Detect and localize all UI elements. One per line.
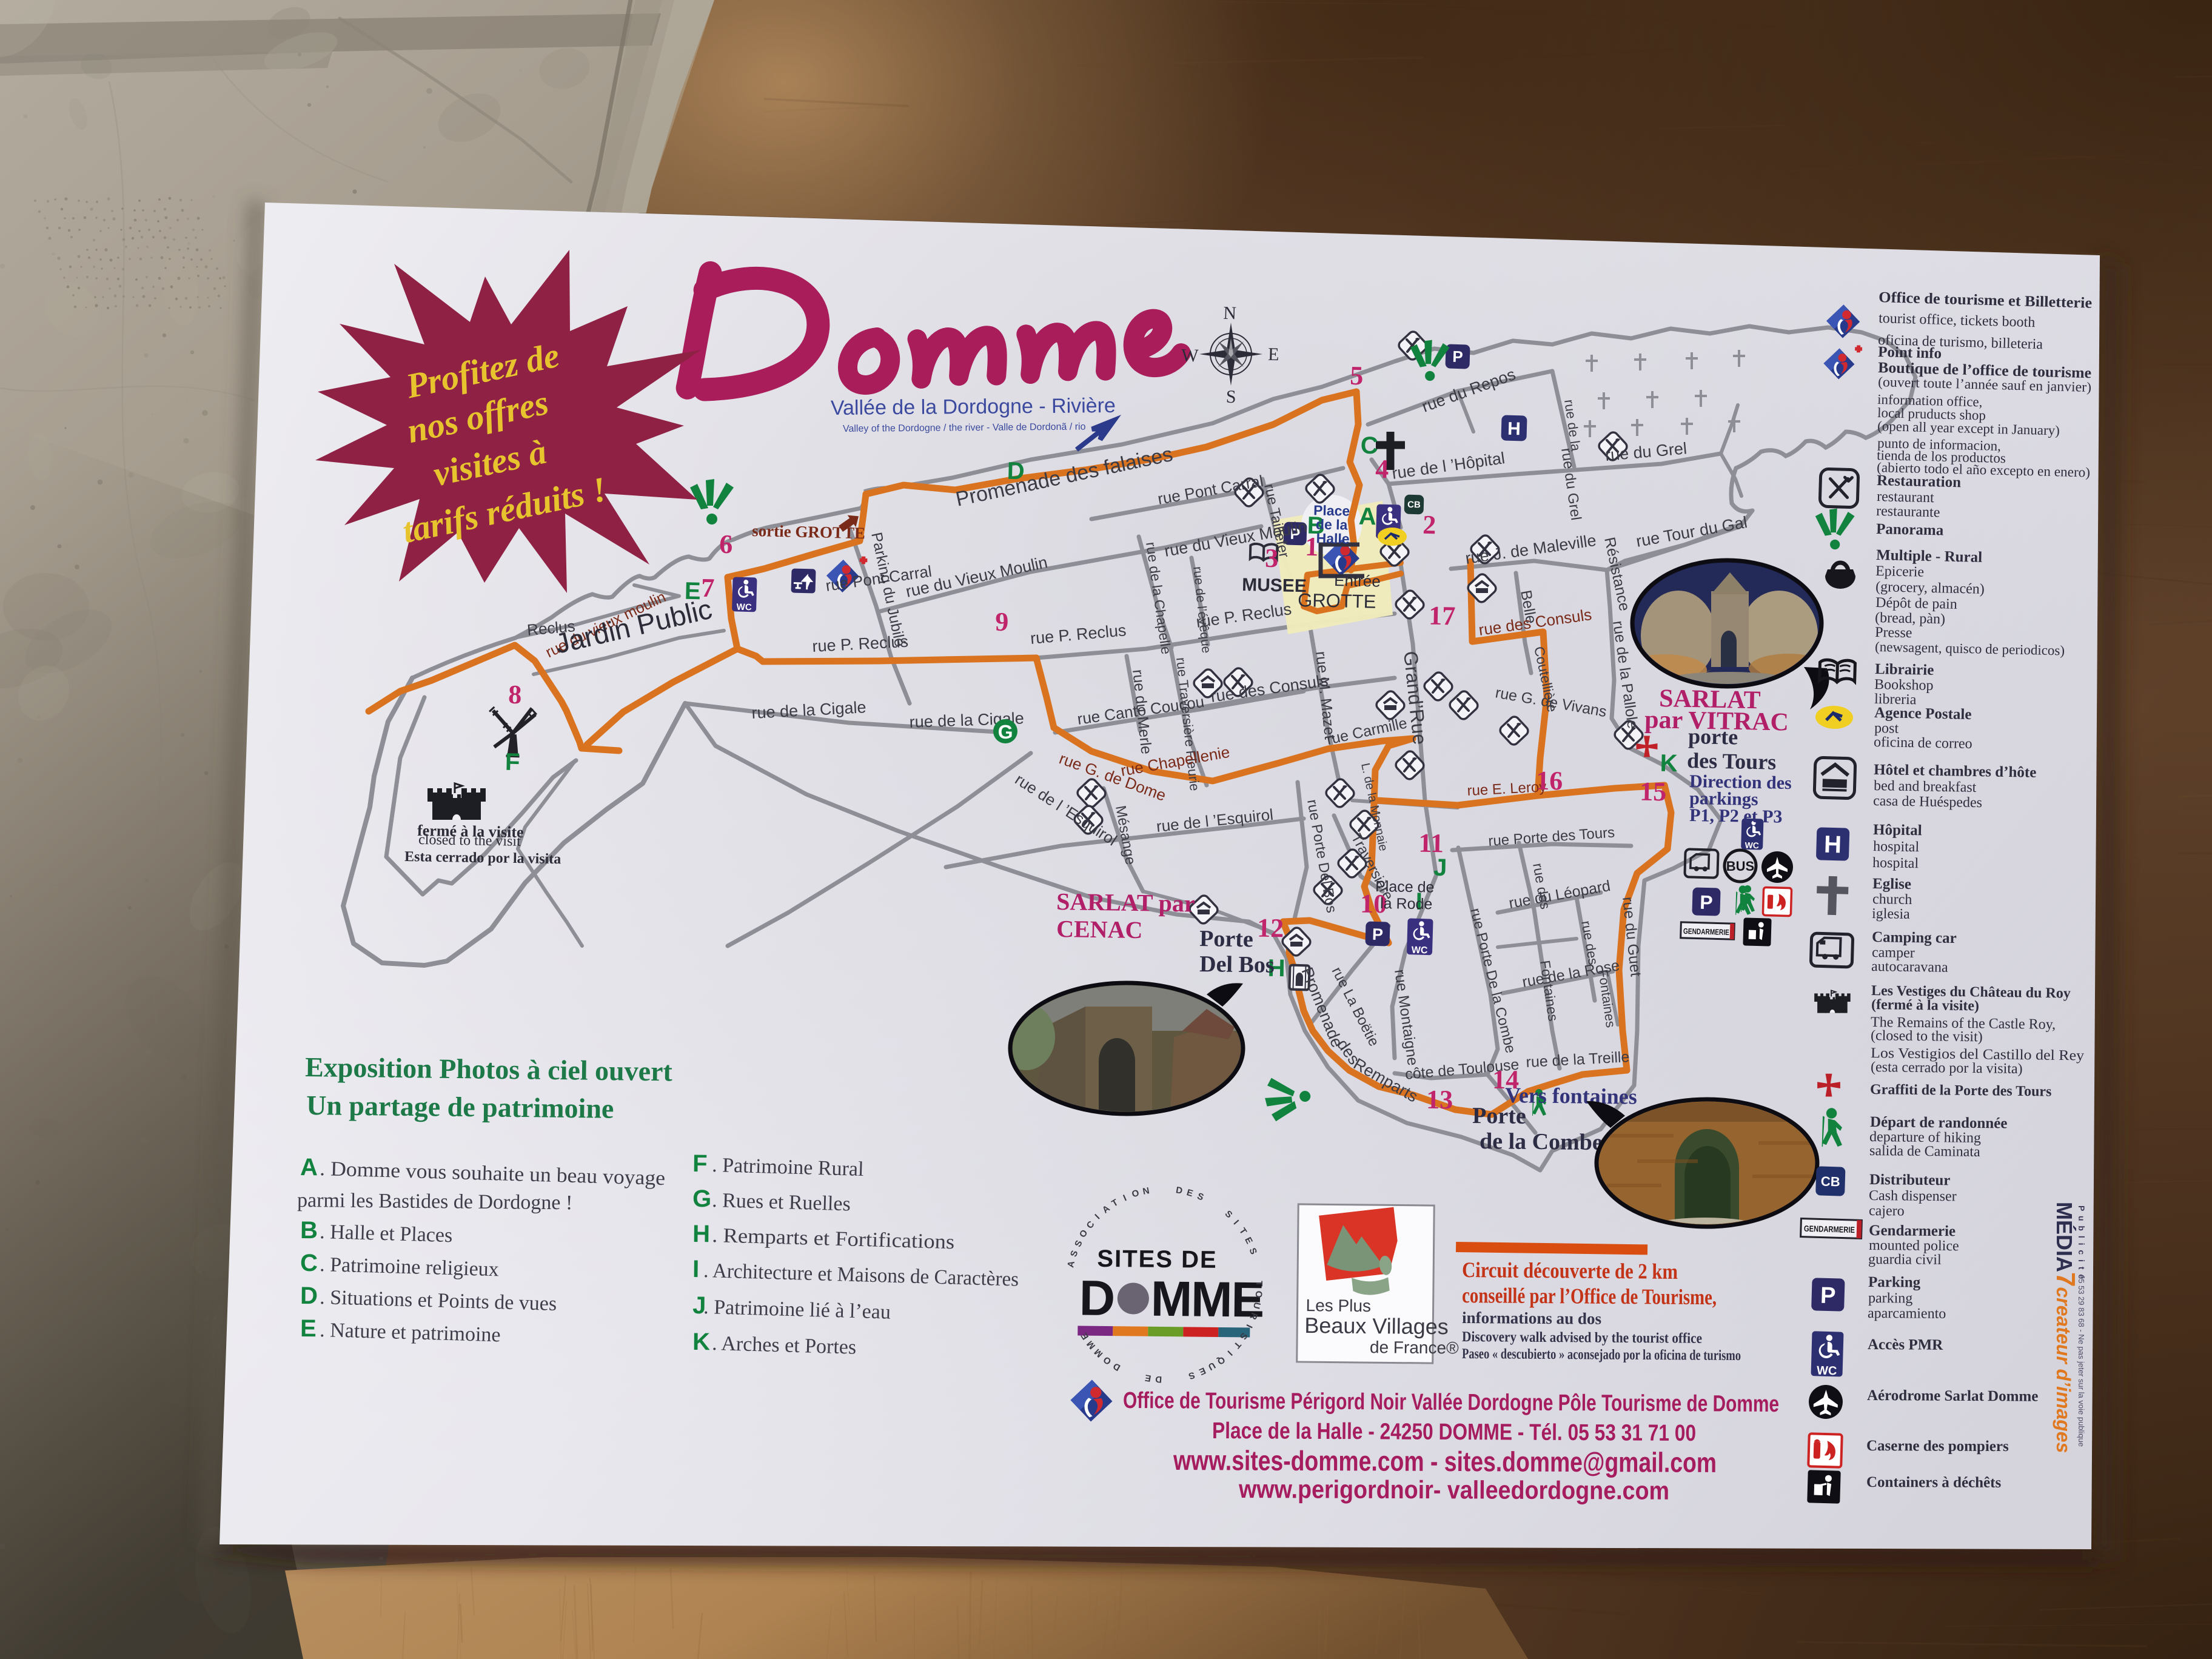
svg-text:D: D: [1079, 1271, 1115, 1327]
svg-text:9: 9: [995, 607, 1009, 637]
svg-text:N: N: [1223, 303, 1237, 324]
svg-text:H: H: [1824, 831, 1842, 859]
svg-text:Vallée de la Dordogne - Rivièr: Vallée de la Dordogne - Rivière: [831, 394, 1116, 420]
svg-text:. Patrimoine Rural: . Patrimoine Rural: [712, 1154, 864, 1181]
svg-text:WC: WC: [1412, 945, 1429, 956]
svg-text:la Rode: la Rode: [1380, 895, 1433, 913]
svg-text:autocaravana: autocaravana: [1871, 959, 1948, 976]
svg-text:CB: CB: [1407, 500, 1421, 511]
svg-text:Librairie: Librairie: [1875, 661, 1934, 679]
svg-text:E: E: [300, 1315, 317, 1342]
svg-text:oficina de correo: oficina de correo: [1874, 734, 1972, 752]
svg-text:Containers à déchêts: Containers à déchêts: [1866, 1474, 2002, 1491]
svg-text:2: 2: [1423, 510, 1436, 540]
svg-text:Distributeur: Distributeur: [1869, 1171, 1951, 1188]
svg-text:O: O: [1253, 1290, 1264, 1299]
svg-text:iglesia: iglesia: [1872, 906, 1910, 922]
svg-text:informations au dos: informations au dos: [1462, 1309, 1601, 1328]
svg-text:6: 6: [719, 529, 733, 559]
svg-text:closed to the visit: closed to the visit: [418, 832, 521, 850]
svg-text:P1, P2 et P3: P1, P2 et P3: [1689, 805, 1783, 827]
svg-text:parking: parking: [1868, 1290, 1913, 1307]
svg-text:Multiple - Rural: Multiple - Rural: [1876, 547, 1983, 566]
svg-text:Del Bos: Del Bos: [1199, 951, 1275, 978]
svg-text:13: 13: [1426, 1085, 1453, 1115]
svg-text:SITES DE: SITES DE: [1097, 1245, 1218, 1273]
svg-text:Hôpital: Hôpital: [1873, 822, 1922, 839]
svg-text:Halle: Halle: [1316, 530, 1350, 546]
svg-text:P: P: [1700, 891, 1713, 914]
svg-text:P u b l i c i t é: P u b l i c i t é: [2077, 1205, 2086, 1280]
svg-text:H: H: [1507, 419, 1521, 440]
svg-text:cajero: cajero: [1869, 1203, 1905, 1219]
svg-text:(esta cerrado por la visita): (esta cerrado por la visita): [1871, 1059, 2023, 1077]
svg-text:Place de la Halle - 24250 DOMM: Place de la Halle - 24250 DOMME - Tél. 0…: [1212, 1418, 1696, 1446]
svg-text:SARLAT par: SARLAT par: [1056, 888, 1195, 917]
svg-text:guardia civil: guardia civil: [1868, 1252, 1942, 1268]
svg-text:Camping car: Camping car: [1872, 929, 1957, 947]
svg-text:GENDARMERIE: GENDARMERIE: [1804, 1224, 1855, 1235]
svg-text:. Rues et Ruelles: . Rues et Ruelles: [712, 1189, 851, 1215]
svg-text:G: G: [692, 1185, 712, 1212]
svg-text:restaurante: restaurante: [1876, 503, 1940, 520]
svg-text:5: 5: [1350, 361, 1364, 391]
svg-text:Paseo « descubierto » aconseja: Paseo « descubierto » aconsejado por la …: [1462, 1346, 1741, 1364]
svg-text:CENAC: CENAC: [1056, 915, 1143, 943]
svg-text:porte: porte: [1688, 724, 1738, 749]
svg-text:D: D: [1007, 458, 1025, 485]
svg-text:MME: MME: [1150, 1272, 1263, 1328]
svg-text:(closed to the visit): (closed to the visit): [1871, 1028, 1983, 1045]
svg-text:Point info: Point info: [1878, 344, 1942, 362]
svg-text:Graffiti de la Porte des Tours: Graffiti de la Porte des Tours: [1870, 1082, 2052, 1100]
svg-text:Aérodrome Sarlat Domme: Aérodrome Sarlat Domme: [1867, 1387, 2038, 1405]
svg-text:F: F: [505, 749, 520, 776]
svg-text:Office de Tourisme Périgord No: Office de Tourisme Périgord Noir Vallée …: [1123, 1388, 1779, 1417]
svg-text:Cash dispenser: Cash dispenser: [1869, 1188, 1957, 1204]
svg-text:Un partage de patrimoine: Un partage de patrimoine: [306, 1090, 614, 1124]
svg-text:conseillé par l’Office de Tour: conseillé par l’Office de Tourisme,: [1462, 1283, 1717, 1309]
svg-text:casa de Huéspedes: casa de Huéspedes: [1873, 793, 1982, 811]
svg-text:. Arches et Portes: . Arches et Portes: [712, 1332, 857, 1359]
svg-text:E: E: [1268, 344, 1279, 364]
svg-text:Esta cerrado por la visita: Esta cerrado por la visita: [404, 849, 561, 867]
svg-text:de la Combe: de la Combe: [1480, 1128, 1603, 1155]
svg-text:E: E: [684, 578, 701, 605]
svg-text:A: A: [300, 1154, 318, 1181]
svg-text:8: 8: [508, 680, 522, 709]
svg-text:3: 3: [1265, 543, 1279, 573]
svg-text:Eglise: Eglise: [1872, 876, 1911, 893]
svg-text:GROTTE: GROTTE: [1298, 589, 1376, 612]
svg-text:A: A: [1358, 503, 1376, 531]
svg-text:7: 7: [701, 573, 715, 603]
svg-text:Restauration: Restauration: [1877, 472, 1962, 491]
svg-text:P: P: [1372, 925, 1384, 943]
svg-text:H: H: [692, 1221, 710, 1247]
svg-text:(grocery, almacén): (grocery, almacén): [1875, 579, 1985, 597]
svg-text:Panorama: Panorama: [1876, 521, 1944, 539]
svg-text:hospital: hospital: [1873, 839, 1920, 855]
svg-text:Porte: Porte: [1472, 1103, 1526, 1129]
svg-text:16: 16: [1536, 766, 1563, 796]
svg-text:(fermé à la visite): (fermé à la visite): [1871, 997, 1979, 1014]
svg-text:WC: WC: [1817, 1364, 1837, 1378]
svg-text:I: I: [692, 1256, 699, 1282]
svg-text:CB: CB: [1821, 1174, 1840, 1190]
svg-text:. Halle et Places: . Halle et Places: [320, 1221, 453, 1247]
svg-text:Exposition Photos à ciel ouver: Exposition Photos à ciel ouvert: [305, 1051, 673, 1087]
svg-text:des Tours: des Tours: [1687, 748, 1777, 774]
svg-text:S: S: [1225, 387, 1236, 407]
svg-text:Epicerie: Epicerie: [1875, 563, 1925, 580]
svg-text:W: W: [1181, 346, 1199, 366]
svg-text:parmi les Bastides de Dordogne: parmi les Bastides de Dordogne !: [297, 1189, 573, 1214]
svg-text:GENDARMERIE: GENDARMERIE: [1683, 927, 1730, 937]
svg-text:church: church: [1872, 891, 1912, 908]
svg-text:Accès PMR: Accès PMR: [1868, 1336, 1943, 1353]
svg-text:B: B: [300, 1217, 318, 1244]
svg-text:WC: WC: [736, 602, 752, 613]
svg-text:salida de Caminata: salida de Caminata: [1869, 1143, 1980, 1160]
svg-text:F: F: [692, 1150, 708, 1177]
svg-text:aparcamiento: aparcamiento: [1868, 1305, 1946, 1322]
svg-text:K: K: [692, 1329, 710, 1355]
svg-text:www.sites-domme.com - sites.do: www.sites-domme.com - sites.domme@gmail.…: [1173, 1444, 1717, 1478]
svg-text:Gendarmerie: Gendarmerie: [1869, 1222, 1956, 1239]
svg-text:P: P: [1820, 1283, 1837, 1309]
svg-text:hospital: hospital: [1872, 855, 1919, 871]
svg-text:de France®: de France®: [1370, 1338, 1459, 1357]
svg-text:J: J: [1433, 854, 1447, 881]
svg-text:4: 4: [1375, 454, 1389, 484]
svg-text:Circuit découverte de 2 km: Circuit découverte de 2 km: [1462, 1258, 1678, 1284]
svg-text:WC: WC: [1744, 840, 1759, 851]
svg-text:T: T: [1254, 1281, 1264, 1286]
svg-text:05 53 29 83 68 - Ne pas jeter: 05 53 29 83 68 - Ne pas jeter sur la voi…: [2077, 1275, 2086, 1447]
svg-text:Place de: Place de: [1375, 878, 1435, 896]
svg-text:D: D: [300, 1282, 318, 1309]
svg-text:MUSEE: MUSEE: [1242, 575, 1307, 596]
svg-text:G: G: [997, 721, 1013, 743]
svg-text:BUS: BUS: [1726, 859, 1754, 874]
svg-text:Presse: Presse: [1875, 625, 1912, 641]
svg-text:C: C: [300, 1250, 318, 1276]
svg-text:Entrée: Entrée: [1334, 571, 1381, 591]
svg-text:Valley of the Dordogne / the r: Valley of the Dordogne / the river - Val…: [843, 422, 1086, 434]
svg-text:15: 15: [1640, 777, 1667, 807]
svg-text:12: 12: [1257, 913, 1284, 943]
svg-text:K: K: [1660, 750, 1678, 777]
svg-text:D: D: [1155, 1374, 1162, 1385]
svg-text:P: P: [1452, 347, 1463, 366]
svg-text:sortie GROTTE: sortie GROTTE: [752, 521, 865, 542]
svg-text:Beaux Villages: Beaux Villages: [1304, 1313, 1449, 1339]
svg-text:17: 17: [1429, 601, 1456, 631]
svg-text:www.perigordnoir- valleedordog: www.perigordnoir- valleedordogne.com: [1238, 1475, 1669, 1505]
svg-text:11: 11: [1418, 828, 1444, 859]
svg-text:Porte: Porte: [1199, 926, 1253, 952]
svg-text:Caserne des pompiers: Caserne des pompiers: [1866, 1438, 2009, 1455]
svg-text:Parking: Parking: [1868, 1274, 1921, 1291]
svg-text:Discovery walk advised by the: Discovery walk advised by the tourist of…: [1462, 1329, 1702, 1347]
